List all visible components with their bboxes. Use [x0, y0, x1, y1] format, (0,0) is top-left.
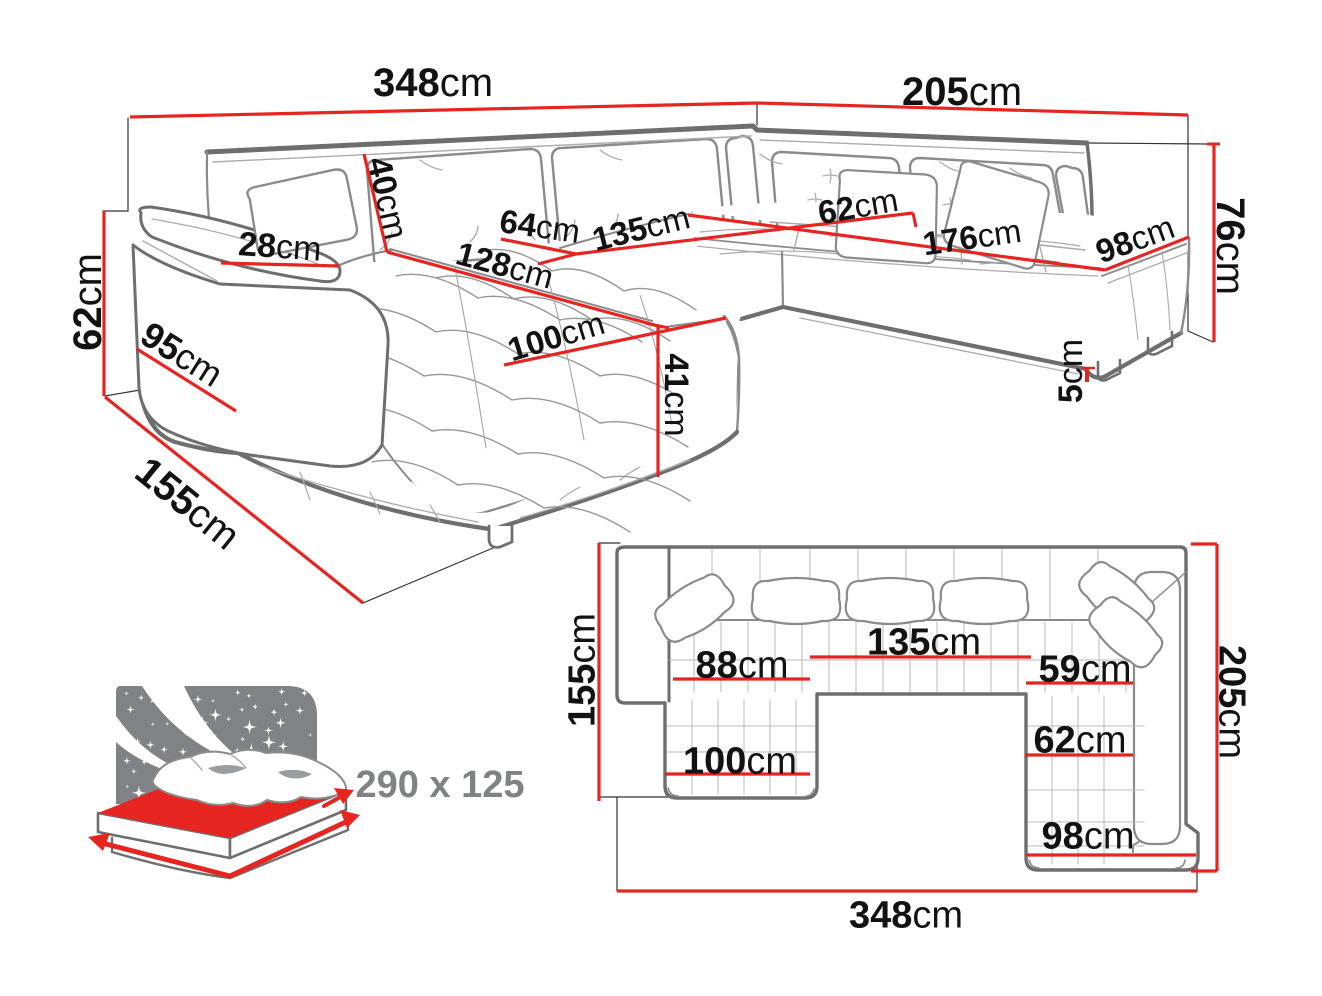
- svg-text:62cm: 62cm: [66, 253, 110, 351]
- svg-text:62cm: 62cm: [1034, 719, 1127, 761]
- svg-text:41cm: 41cm: [657, 353, 695, 436]
- svg-text:348cm: 348cm: [373, 61, 493, 105]
- svg-text:155cm: 155cm: [561, 613, 603, 727]
- svg-text:5cm: 5cm: [1052, 339, 1090, 403]
- svg-text:76cm: 76cm: [1208, 197, 1252, 295]
- svg-text:205cm: 205cm: [1211, 645, 1253, 759]
- svg-text:98cm: 98cm: [1042, 815, 1135, 857]
- svg-text:290 x 125: 290 x 125: [355, 764, 524, 806]
- svg-text:88cm: 88cm: [696, 644, 789, 686]
- svg-text:28cm: 28cm: [237, 225, 323, 269]
- svg-text:348cm: 348cm: [849, 894, 963, 936]
- svg-text:135cm: 135cm: [867, 621, 981, 663]
- svg-text:100cm: 100cm: [683, 740, 797, 782]
- svg-text:59cm: 59cm: [1039, 648, 1132, 690]
- svg-text:205cm: 205cm: [902, 70, 1022, 114]
